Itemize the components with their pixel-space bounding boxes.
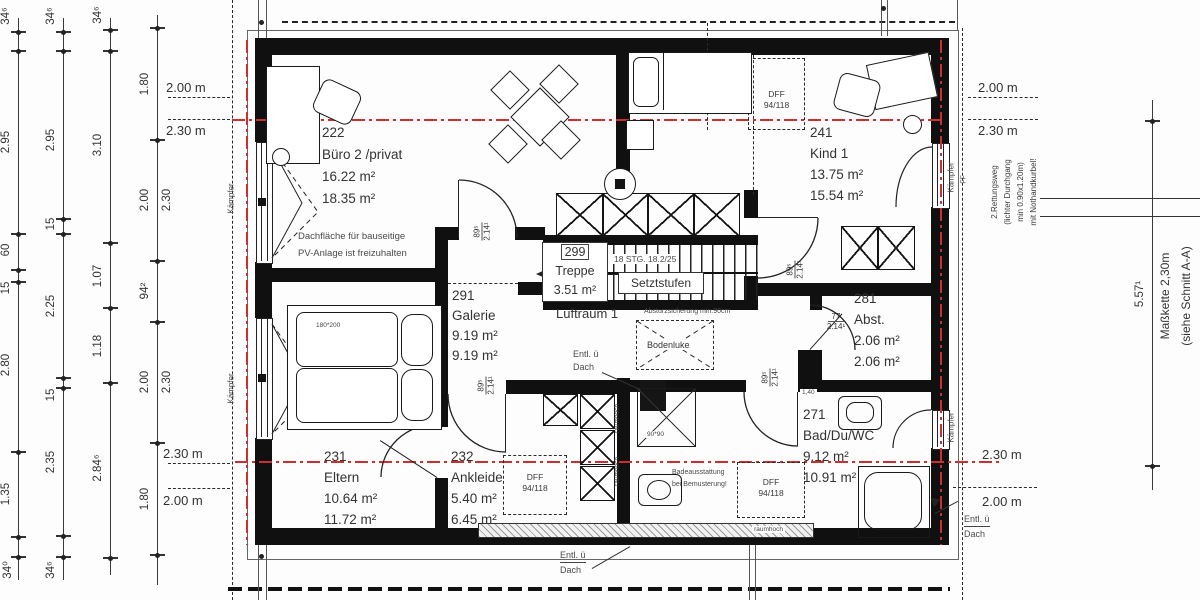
- roof-dashed-top: [282, 21, 955, 23]
- dim-label: 2.84⁶: [92, 428, 106, 508]
- wall-buero-galerie-r: [515, 227, 545, 240]
- height-230-left-top: 2.30 m: [166, 123, 206, 138]
- lamp-buero: [272, 148, 290, 166]
- glazing-strip: raumhoch: [478, 523, 814, 538]
- masskette-line1: Maßkette 2,30m: [1155, 201, 1176, 391]
- treppe-id: 299: [561, 244, 590, 260]
- dim-chain-line: [1152, 100, 1153, 490]
- wall-bad-top-r: [798, 380, 932, 392]
- room-id: 231: [324, 446, 377, 467]
- dim-label: 2.00: [139, 160, 153, 240]
- entl-label-bottom: Entl. ü Dach: [560, 548, 586, 577]
- nightstand: [626, 120, 654, 150]
- dim-tick-dot: [61, 386, 66, 391]
- dff-label: DFF: [749, 89, 804, 100]
- rettungsweg-note: 2.Rettungsweg (lichter Durchgang min 0.9…: [988, 137, 1040, 247]
- bodenluke-label: Bodenluke: [645, 340, 692, 350]
- leader: [168, 119, 230, 120]
- room-area: 10.91 m²: [803, 467, 874, 488]
- dim-tick-dot: [61, 217, 66, 222]
- stair-newel: [604, 168, 636, 200]
- door-arc-eltern: [381, 424, 437, 477]
- wall-bottom-behind-glass: [478, 538, 812, 545]
- room-name: Eltern: [324, 467, 377, 488]
- luftraum-edge: [448, 283, 518, 284]
- height-200-right-top: 2.00 m: [978, 80, 1018, 95]
- dim-chain-line: [110, 18, 111, 575]
- downpipe-bottom-mid-2: [755, 545, 756, 600]
- rettungsweg-line4: mit Nothandkurbel!: [1027, 137, 1040, 247]
- dim-tick-dot: [61, 232, 66, 237]
- dim-label: 34⁰: [0, 530, 14, 600]
- dim-tick-dot: [155, 553, 160, 558]
- dim-tick-dot: [108, 306, 113, 311]
- room-area: 18.35 m²: [322, 188, 402, 210]
- dff-label: DFF: [504, 472, 566, 483]
- room-area: 16.22 m²: [322, 166, 402, 188]
- dim-tick-dot: [108, 49, 113, 54]
- dim-tick-dot: [61, 534, 66, 539]
- room-name: Ankleide: [451, 467, 503, 488]
- downpipe-dot-bl: [259, 554, 264, 559]
- dim-tick-dot: [16, 450, 21, 455]
- room-area: 5.40 m²: [451, 488, 503, 509]
- door-width: 89⁵: [786, 260, 796, 278]
- dim-label: 34⁶: [45, 0, 59, 56]
- downpipe-top-right-2: [887, 0, 888, 36]
- dim-tick-dot: [61, 49, 66, 54]
- entl-line2: Dach: [560, 563, 586, 577]
- leader: [168, 488, 230, 489]
- bed-size-label: 180*200: [316, 322, 340, 329]
- pv-note: Dachfläche für bauseitige PV-Anlage ist …: [298, 228, 407, 262]
- wall-buero-galerie-l: [435, 227, 459, 240]
- room-id: 291: [452, 286, 498, 306]
- room-label-buero: 222 Büro 2 /privat 16.22 m² 18.35 m²: [322, 122, 402, 210]
- kaempfer-left-2: Kämpfer: [227, 359, 236, 419]
- raumhoch-label-v1: raumhoch: [614, 402, 621, 436]
- bad-note-line2: bei Bemusterung!: [672, 479, 727, 491]
- room-label-bad: 271 Bad/Du/WC 9.12 m² 10.91 m²: [803, 404, 874, 488]
- dim-chain-line: [63, 18, 64, 580]
- door-height: 2.14¹: [796, 257, 805, 281]
- dim-tick-dot: [155, 441, 160, 446]
- dim-chain-line: [18, 18, 19, 580]
- room-id: 232: [451, 446, 503, 467]
- entl-line1: Entl. ü: [573, 348, 599, 361]
- dim-tick-dot: [61, 555, 66, 560]
- dim-label: 2.35: [45, 422, 59, 502]
- dim-tick-dot: [16, 49, 21, 54]
- door-leaf-kind: [758, 217, 818, 218]
- entl-line1: Entl. ü: [964, 512, 990, 527]
- dim-label: 1.35: [0, 454, 14, 534]
- dff-label: DFF: [738, 477, 804, 488]
- room-area: 15.54 m²: [810, 185, 863, 206]
- room-label-ankleide: 232 Ankleide 5.40 m² 6.45 m²: [451, 446, 503, 530]
- dim-tick-dot: [16, 280, 21, 285]
- red-line-left: [246, 40, 248, 545]
- room-area: 10.64 m²: [324, 488, 377, 509]
- room-area: 9.19 m²: [452, 326, 498, 346]
- dim-label: 34⁶: [45, 530, 59, 600]
- dim-label: 2.30: [161, 160, 175, 240]
- door-dim-bad: 89⁵ 2.14¹: [761, 350, 780, 406]
- leader: [168, 97, 230, 98]
- height-200-left-bottom: 2.00 m: [163, 493, 203, 508]
- entl-label-center: Entl. ü Dach: [573, 348, 599, 374]
- downpipe-bottom-left: [258, 545, 259, 600]
- height-200-left-top: 2.00 m: [166, 80, 206, 95]
- dim-label: 3.10: [92, 105, 106, 185]
- entl-line2: Dach: [964, 527, 990, 541]
- downpipe-top-left: [258, 0, 259, 38]
- room-id: 271: [803, 404, 874, 425]
- dim-tick-dot: [1150, 119, 1155, 124]
- bodenluke-box: Bodenluke: [636, 320, 714, 370]
- dim-tick-dot: [108, 556, 113, 561]
- dim-tick-dot: [108, 28, 113, 33]
- dim-tick-dot: [108, 241, 113, 246]
- dim-tick-dot: [61, 30, 66, 35]
- treppe-area: 3.51 m²: [543, 281, 607, 300]
- masskette-note: Maßkette 2,30m (siehe Schnitt A-A): [1155, 201, 1197, 391]
- bed-double: 180*200: [287, 305, 442, 430]
- dim-chain-line: [157, 15, 158, 585]
- dff-box-ankleide: DFF 94/118: [503, 455, 567, 515]
- room-name: Bad/Du/WC: [803, 425, 874, 446]
- dim-label: 1.18: [92, 306, 106, 386]
- bad-note-line1: Badeausstattung: [672, 467, 727, 479]
- room-label-eltern: 231 Eltern 10.64 m² 11.72 m²: [324, 446, 377, 530]
- entl-line2: Dach: [573, 361, 599, 374]
- masskette-bar-1: [1040, 198, 1200, 199]
- dim-tick-dot: [16, 268, 21, 273]
- wardrobe-kind: [843, 226, 915, 270]
- dim-tick-dot: [155, 26, 160, 31]
- door-width: 89⁵: [761, 368, 771, 386]
- dim-label: 15: [0, 248, 14, 328]
- room-id: 281: [854, 288, 900, 309]
- room-area: 13.75 m²: [810, 164, 863, 185]
- roof-dashed-bottom: [228, 587, 950, 591]
- wall-eltern-ankleide-2: [435, 478, 448, 528]
- pv-note-line1: Dachfläche für bauseitige: [298, 228, 407, 245]
- room-label-kind: 241 Kind 1 13.75 m² 15.54 m²: [810, 122, 863, 206]
- floorplan-drawing: 34⁶2.9560152.801.3534⁰34⁶2.95152.25152.3…: [0, 0, 1200, 600]
- kaempfer-right-1: Kämpfer: [947, 148, 956, 208]
- dim-label: 2.95: [45, 100, 59, 180]
- dim-label: 2.80: [0, 325, 14, 405]
- dim-label: 2.00: [139, 342, 153, 422]
- dim-label: 34⁶: [92, 0, 106, 55]
- door-dim-ankleide: 89⁵ 2.14¹: [477, 358, 496, 414]
- dim-label: 34⁶: [0, 0, 14, 56]
- luftraum-label: Luftraum 1: [556, 306, 618, 321]
- absturz-note: Absturzsicherung min.90cm: [644, 308, 730, 315]
- dff-box-bad: DFF 94/118: [737, 462, 805, 518]
- room-id: 222: [322, 122, 402, 144]
- window-opening-arc-bad: [893, 410, 931, 448]
- room-label-abst: 281 Abst. 2.06 m² 2.06 m²: [854, 288, 900, 372]
- door-leaf-buero: [458, 180, 459, 238]
- dim-tick-dot: [16, 535, 21, 540]
- stair-railing: [558, 193, 740, 237]
- room-area: 2.06 m²: [854, 330, 900, 351]
- wall-ankleide-bad: [617, 378, 630, 528]
- dim-label: 2.30: [161, 342, 175, 422]
- wall-step: [435, 240, 448, 275]
- guide-line-right: [962, 28, 963, 600]
- dim-tick-dot: [1150, 464, 1155, 469]
- dim-label: 2.25: [45, 266, 59, 346]
- door-width: 89⁵: [477, 376, 487, 394]
- setztstufen-box: Setztstufen: [618, 272, 704, 294]
- room-name: Kind 1: [810, 143, 863, 164]
- room-id: 241: [810, 122, 863, 143]
- shower-size-label: 90*90: [646, 431, 665, 438]
- shower: 90*90: [637, 388, 696, 447]
- downpipe-top-left-2: [266, 0, 267, 38]
- wall-top: [255, 38, 949, 55]
- dff-size: 94/118: [504, 483, 566, 494]
- window-opening-arc-kind: [896, 147, 932, 207]
- wall-left-3: [255, 438, 272, 545]
- door-height: 2.14¹: [771, 365, 780, 389]
- wall-abst-top: [756, 283, 932, 296]
- dim-tick-dot: [155, 259, 160, 264]
- wall-stair-right-1: [744, 190, 758, 218]
- wardrobe-ankleide-top: [543, 394, 580, 428]
- rettungsweg-line3: min 0.90x1.20m): [1014, 137, 1027, 247]
- entl-label-right: Entl. ü Dach: [964, 512, 990, 541]
- door-height: 2.14¹: [483, 219, 492, 243]
- dim-label: 2.95: [0, 102, 14, 182]
- downpipe-dot-tr: [881, 6, 886, 11]
- dim-tick-dot: [155, 320, 160, 325]
- dff-box-top: DFF 94/118: [748, 58, 805, 130]
- stair-steps-note: 18 STG. 18.2/25: [612, 254, 678, 264]
- height-200-right-bottom: 2.00 m: [982, 494, 1022, 509]
- dim-tick-dot: [16, 30, 21, 35]
- leader: [953, 487, 1037, 488]
- downpipe-bottom-left-2: [266, 545, 267, 600]
- door-dim-abst: 77 2.14¹: [818, 312, 854, 331]
- downpipe-dot-tl: [259, 20, 264, 25]
- roof-edge-top-ext: [957, 0, 958, 30]
- door-width: 89⁵: [473, 222, 483, 240]
- dff-size: 94/118: [749, 100, 804, 111]
- dff-size: 94/118: [738, 488, 804, 499]
- wall-buero-eltern: [260, 268, 448, 282]
- door-leaf-bad: [797, 392, 798, 446]
- room-label-galerie: 291 Galerie 9.19 m² 9.19 m²: [452, 286, 498, 366]
- dim-140: 1,40: [800, 389, 817, 396]
- room-area: 11.72 m²: [324, 509, 377, 530]
- door-leaf-ankleide: [505, 394, 506, 452]
- entl-line1: Entl. ü: [560, 548, 586, 563]
- wall-bottom-left: [255, 528, 478, 545]
- leader: [968, 119, 1038, 120]
- dim-label: 94²: [139, 251, 153, 331]
- dim-tick-dot: [155, 138, 160, 143]
- dim-tick-dot: [108, 381, 113, 386]
- room-area: 6.45 m²: [451, 509, 503, 530]
- kaempfer-left-1: Kämpfer: [227, 169, 236, 229]
- room-name: Büro 2 /privat: [322, 144, 402, 166]
- bad-note: Badeausstattung bei Bemusterung!: [672, 467, 727, 491]
- door-height: 2.14¹: [827, 322, 845, 331]
- wardrobe-ankleide-col: [580, 394, 617, 504]
- room-area: 2.06 m²: [854, 351, 900, 372]
- pv-note-line2: PV-Anlage ist freizuhalten: [298, 245, 407, 262]
- dim-label: 1.07: [92, 236, 106, 316]
- wall-ankleide-top: [506, 380, 617, 394]
- door-dim-buero: 89⁵ 2.14¹: [473, 204, 492, 260]
- dim-tick-dot: [61, 376, 66, 381]
- height-230-right-top: 2.30 m: [978, 123, 1018, 138]
- leader: [168, 463, 230, 464]
- masskette-line2: (siehe Schnitt A-A): [1176, 201, 1197, 391]
- dim-tick-dot: [16, 232, 21, 237]
- ff-label: FF: [961, 168, 968, 192]
- downpipe-bottom-mid: [749, 545, 750, 600]
- height-230-left-bottom: 2.30 m: [163, 446, 203, 461]
- leader: [968, 97, 1038, 98]
- room-name: Abst.: [854, 309, 900, 330]
- dim-label: 1.80: [139, 44, 153, 124]
- rettungsweg-line1: 2.Rettungsweg: [988, 137, 1001, 247]
- raumhoch-label-v2: raumhoch: [614, 455, 621, 489]
- room-name: Galerie: [452, 306, 498, 326]
- dim-tick-dot: [16, 555, 21, 560]
- bed-single: [628, 52, 752, 114]
- height-230-right-bottom: 2.30 m: [982, 447, 1022, 462]
- guide-line-left: [232, 0, 233, 600]
- rettungsweg-line2: (lichter Durchgang: [1001, 137, 1014, 247]
- window-handle-1: [258, 198, 266, 206]
- window-handle-2: [258, 374, 266, 382]
- door-width: 77: [828, 312, 845, 322]
- door-dim-kind: 89⁵ 2.14¹: [786, 242, 805, 298]
- dim-label: 1.80: [139, 459, 153, 539]
- red-line-right: [940, 40, 942, 545]
- kaempfer-right-2: Kämpfer: [947, 398, 956, 458]
- door-height: 2.14¹: [487, 373, 496, 397]
- treppe-name: Treppe: [543, 262, 607, 281]
- treppe-label-box: 299 Treppe 3.51 m²: [542, 242, 608, 302]
- raumhoch-label: raumhoch: [752, 526, 785, 533]
- dim-label: 5.57¹: [1134, 254, 1148, 334]
- dim-label: 15: [45, 184, 59, 264]
- room-area: 9.12 m²: [803, 446, 874, 467]
- lamp-kind: [903, 115, 922, 134]
